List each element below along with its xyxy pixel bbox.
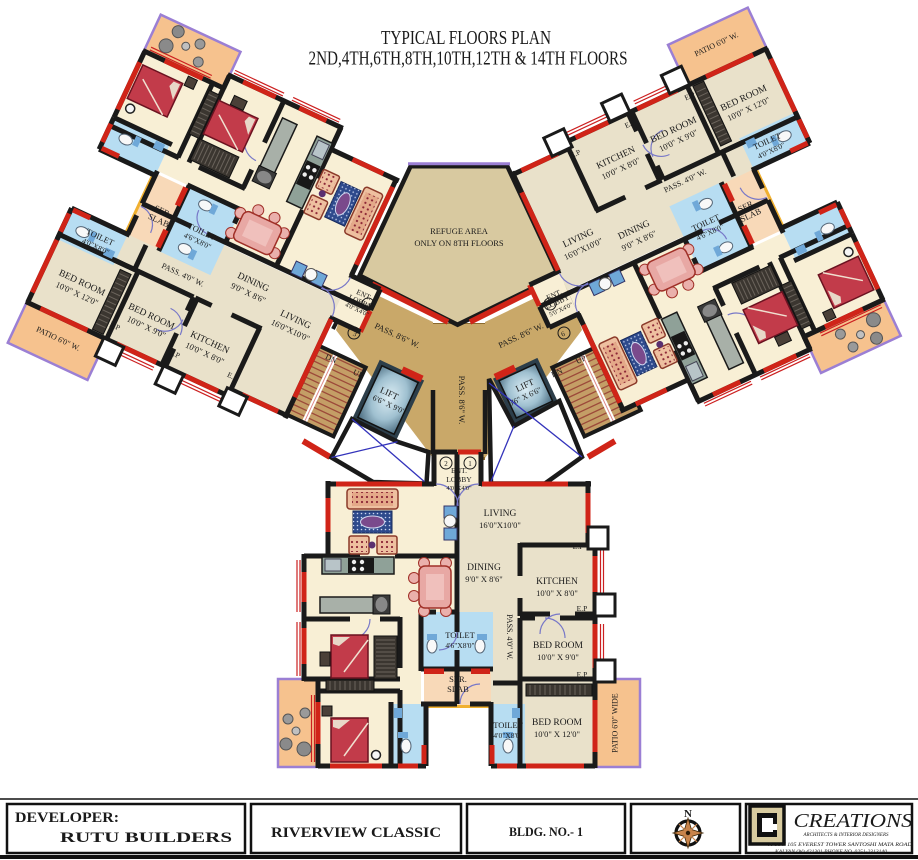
svg-text:10'0" X 9'0": 10'0" X 9'0" bbox=[537, 652, 579, 662]
svg-text:E.P: E.P bbox=[573, 542, 584, 551]
svg-text:CREATIONS: CREATIONS bbox=[794, 810, 913, 832]
svg-text:16'0"X10'0": 16'0"X10'0" bbox=[479, 520, 521, 530]
svg-text:TYPICAL FLOORS PLAN: TYPICAL FLOORS PLAN bbox=[381, 28, 551, 49]
svg-text:ONLY ON 8TH FLOORS: ONLY ON 8TH FLOORS bbox=[414, 238, 504, 248]
svg-text:4'6"X8'0": 4'6"X8'0" bbox=[445, 641, 474, 650]
svg-text:BED ROOM: BED ROOM bbox=[532, 718, 582, 728]
svg-text:10'0" X 8'0": 10'0" X 8'0" bbox=[536, 588, 578, 598]
svg-text:REFUGE AREA: REFUGE AREA bbox=[430, 226, 489, 236]
svg-text:RIVERVIEW CLASSIC: RIVERVIEW CLASSIC bbox=[271, 825, 441, 841]
svg-text:2ND,4TH,6TH,8TH,10TH,12TH & 14: 2ND,4TH,6TH,8TH,10TH,12TH & 14TH FLOORS bbox=[309, 49, 628, 70]
svg-text:PASS. 4'0" W.: PASS. 4'0" W. bbox=[505, 614, 514, 660]
svg-text:2: 2 bbox=[444, 460, 448, 468]
svg-text:KALYAN (W) 421301 PHONE NO.: KALYAN (W) 421301 PHONE NO. 0251-2313140 bbox=[774, 848, 887, 855]
svg-text:10'0" X 12'0": 10'0" X 12'0" bbox=[534, 729, 580, 739]
svg-text:LOBBY: LOBBY bbox=[446, 475, 472, 484]
svg-text:DEVELOPER:: DEVELOPER: bbox=[15, 810, 119, 826]
svg-text:RUTU BUILDERS: RUTU BUILDERS bbox=[60, 830, 232, 846]
svg-text:SER.: SER. bbox=[449, 674, 467, 684]
svg-text:A-104/ 105 EVEREST TOWER SANTO: A-104/ 105 EVEREST TOWER SANTOSHI MATA R… bbox=[767, 842, 914, 848]
svg-text:ARCHITECTS & INTERIOR DESIGNER: ARCHITECTS & INTERIOR DESIGNERS bbox=[802, 833, 889, 838]
svg-text:4'0"X8'0": 4'0"X8'0" bbox=[493, 731, 522, 740]
svg-text:TOILET: TOILET bbox=[445, 630, 475, 640]
svg-text:ENT.: ENT. bbox=[451, 466, 467, 475]
svg-text:LIVING: LIVING bbox=[484, 509, 517, 519]
svg-text:SLAB: SLAB bbox=[447, 684, 469, 694]
svg-text:E.P: E.P bbox=[577, 604, 588, 613]
svg-text:DINING: DINING bbox=[467, 563, 501, 573]
svg-text:E.P: E.P bbox=[577, 670, 588, 679]
svg-text:BED ROOM: BED ROOM bbox=[533, 641, 583, 651]
svg-text:1: 1 bbox=[468, 460, 472, 468]
svg-text:4'0"X4'0": 4'0"X4'0" bbox=[446, 485, 472, 492]
svg-text:9'0" X 8'6": 9'0" X 8'6" bbox=[465, 574, 502, 584]
svg-text:TOILET: TOILET bbox=[493, 720, 523, 730]
svg-text:PASS. 8'6" W.: PASS. 8'6" W. bbox=[457, 376, 467, 425]
svg-text:BLDG. NO.- 1: BLDG. NO.- 1 bbox=[509, 825, 583, 839]
svg-text:PATIO 6'0" WIDE: PATIO 6'0" WIDE bbox=[611, 693, 620, 752]
svg-text:KITCHEN: KITCHEN bbox=[536, 577, 578, 587]
